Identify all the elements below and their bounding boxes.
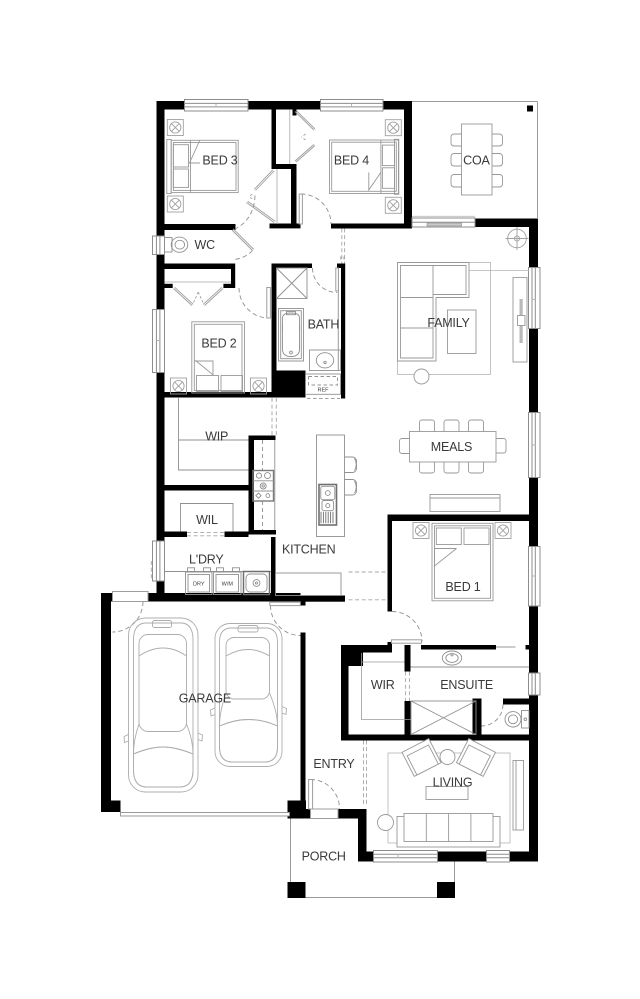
svg-text:PORCH: PORCH — [302, 849, 346, 863]
svg-text:ENTRY: ENTRY — [313, 757, 355, 771]
svg-text:WC: WC — [194, 238, 215, 252]
svg-text:W/M: W/M — [222, 582, 234, 588]
svg-text:MEALS: MEALS — [431, 440, 472, 454]
svg-text:WIR: WIR — [371, 678, 395, 692]
svg-text:FAMILY: FAMILY — [427, 316, 470, 330]
svg-text:BATH: BATH — [308, 318, 340, 332]
svg-text:WIP: WIP — [205, 429, 228, 443]
svg-text:BED 1: BED 1 — [445, 580, 480, 594]
svg-text:GARAGE: GARAGE — [179, 692, 231, 706]
svg-text:BED 4: BED 4 — [334, 153, 369, 167]
svg-text:WIL: WIL — [196, 513, 218, 527]
svg-text:BED 3: BED 3 — [202, 154, 237, 168]
svg-text:ENSUITE: ENSUITE — [440, 678, 493, 692]
svg-text:KITCHEN: KITCHEN — [282, 543, 336, 557]
svg-text:REF: REF — [318, 388, 330, 394]
svg-text:LIVING: LIVING — [433, 776, 473, 790]
svg-text:L'DRY: L'DRY — [189, 553, 224, 567]
svg-text:DRY: DRY — [193, 582, 205, 588]
svg-text:BED 2: BED 2 — [201, 337, 236, 351]
svg-text:COA: COA — [463, 154, 490, 168]
